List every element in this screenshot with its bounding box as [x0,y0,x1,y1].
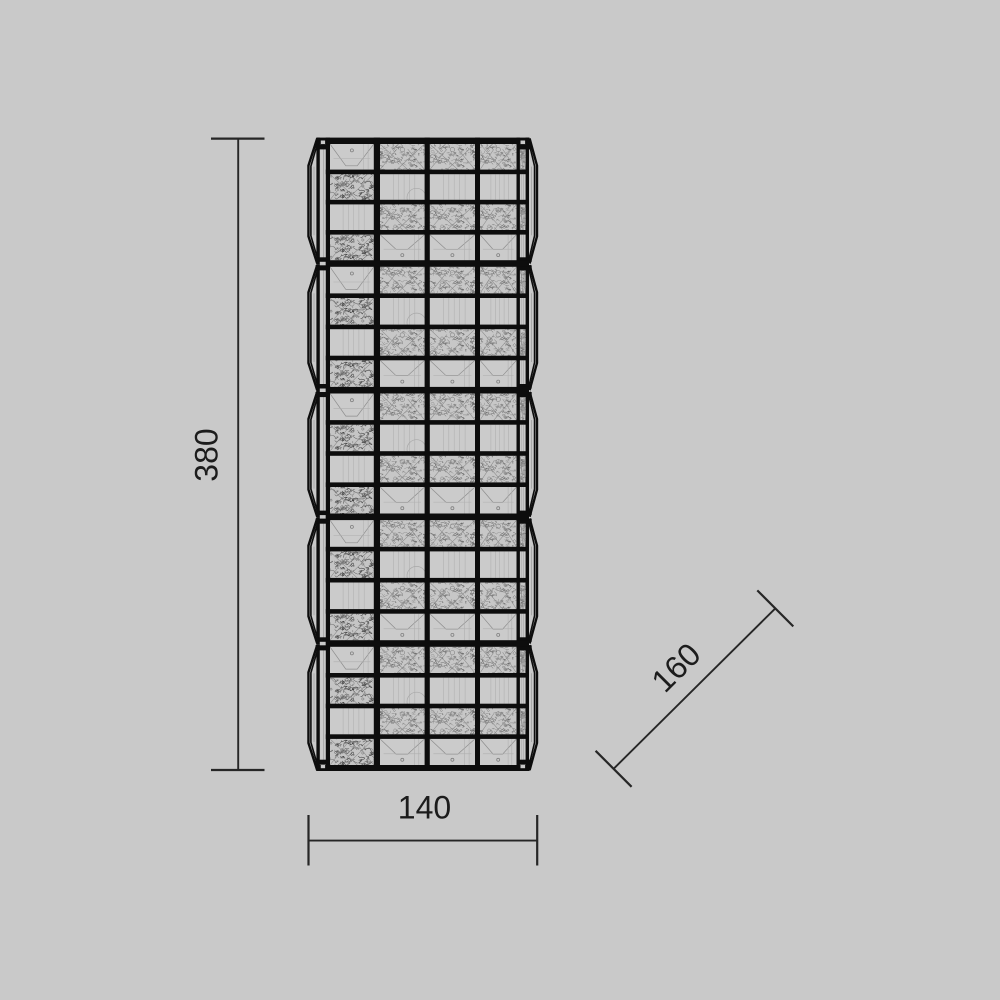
svg-text:140: 140 [398,790,451,826]
svg-text:380: 380 [189,428,225,481]
